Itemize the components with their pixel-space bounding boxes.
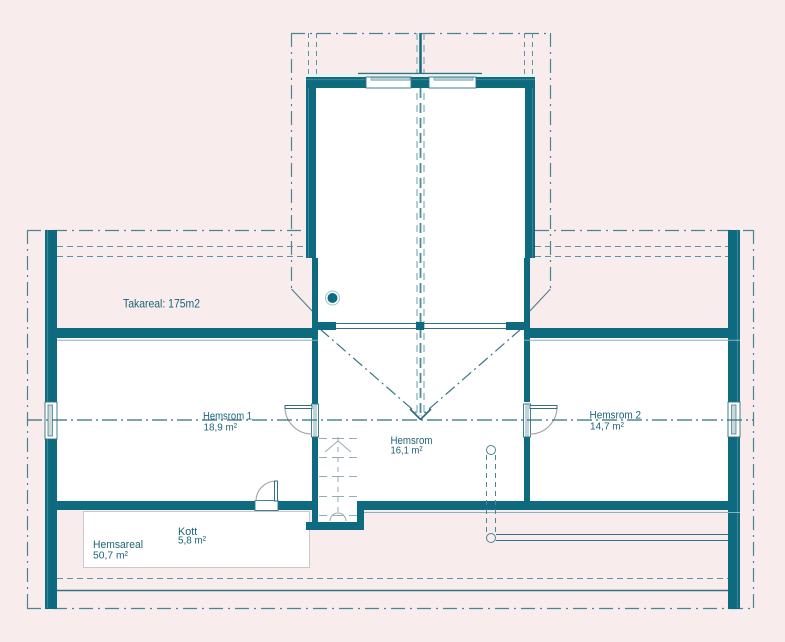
- svg-text:14,7 m²: 14,7 m²: [590, 422, 625, 433]
- svg-text:18,9 m²: 18,9 m²: [204, 423, 238, 434]
- svg-text:Hemsrom 2: Hemsrom 2: [590, 410, 642, 422]
- svg-text:Takareal: 175m2: Takareal: 175m2: [123, 297, 200, 311]
- svg-text:5,8 m²: 5,8 m²: [178, 536, 207, 547]
- svg-text:50,7 m²: 50,7 m²: [93, 551, 129, 562]
- svg-text:Hemsrom 1: Hemsrom 1: [203, 411, 252, 423]
- svg-text:Hemsareal: Hemsareal: [93, 539, 143, 551]
- svg-text:16,1 m²: 16,1 m²: [391, 446, 424, 457]
